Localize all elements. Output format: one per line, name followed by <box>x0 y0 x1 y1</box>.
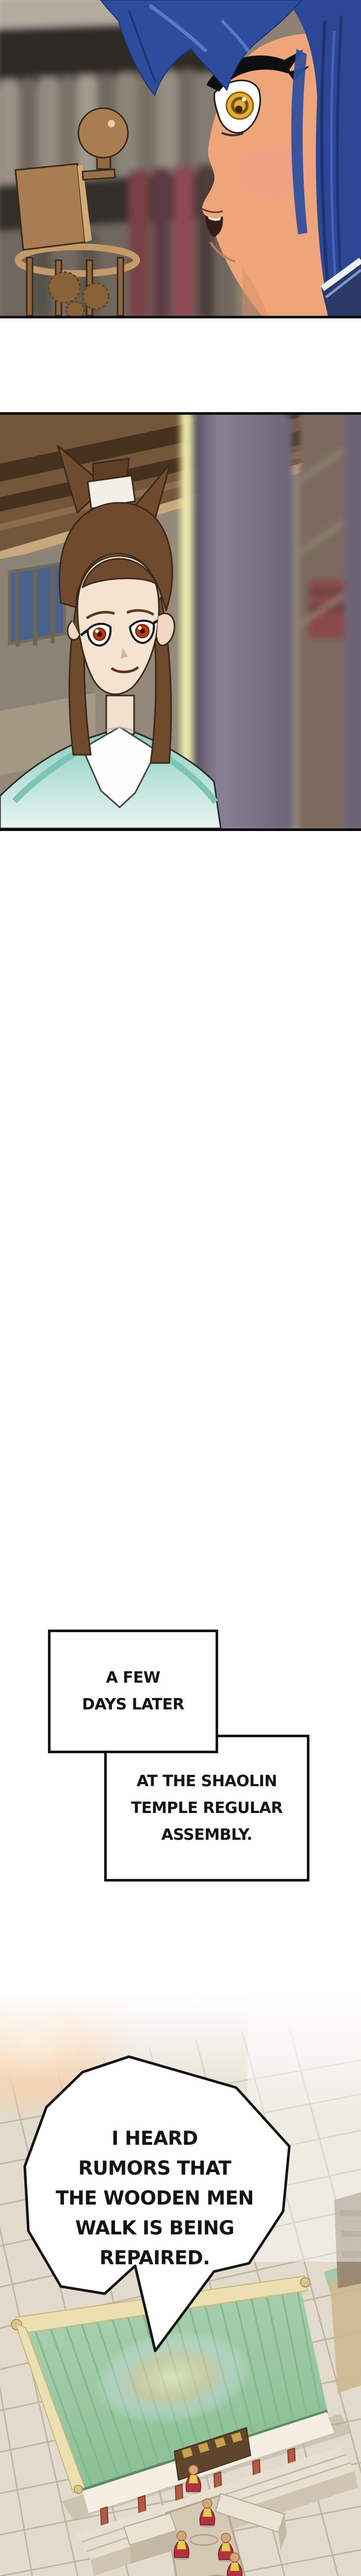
caption-line: DAYS LATER <box>82 1691 184 1718</box>
panel-2-artwork <box>0 415 361 828</box>
bubble-line: THE WOODEN MEN <box>56 2183 254 2213</box>
panel-ponytail-character <box>0 412 361 831</box>
panel-1-artwork <box>0 0 361 316</box>
caption-line: A FEW <box>106 1665 160 1691</box>
bubble-line: WALK IS BEING <box>75 2213 234 2243</box>
bubble-line: RUMORS THAT <box>78 2154 232 2183</box>
caption-timeskip-box: A FEW DAYS LATER <box>48 1630 218 1753</box>
bubble-line: I HEARD <box>111 2124 198 2154</box>
panel-closeup-blue-hair <box>0 0 361 318</box>
blurred-pillar-and-shelf <box>180 415 361 828</box>
webtoon-page: AT THE SHAOLIN TEMPLE REGULAR ASSEMBLY. … <box>0 0 361 2576</box>
bubble-rumor-text: I HEARD RUMORS THAT THE WOODEN MEN WALK … <box>31 2124 278 2273</box>
caption-location-box: AT THE SHAOLIN TEMPLE REGULAR ASSEMBLY. <box>104 1735 309 1882</box>
caption-line: TEMPLE REGULAR <box>131 1795 283 1822</box>
bubble-line: REPAIRED. <box>100 2243 210 2273</box>
caption-line: AT THE SHAOLIN <box>137 1768 277 1795</box>
caption-line: ASSEMBLY. <box>161 1822 252 1849</box>
